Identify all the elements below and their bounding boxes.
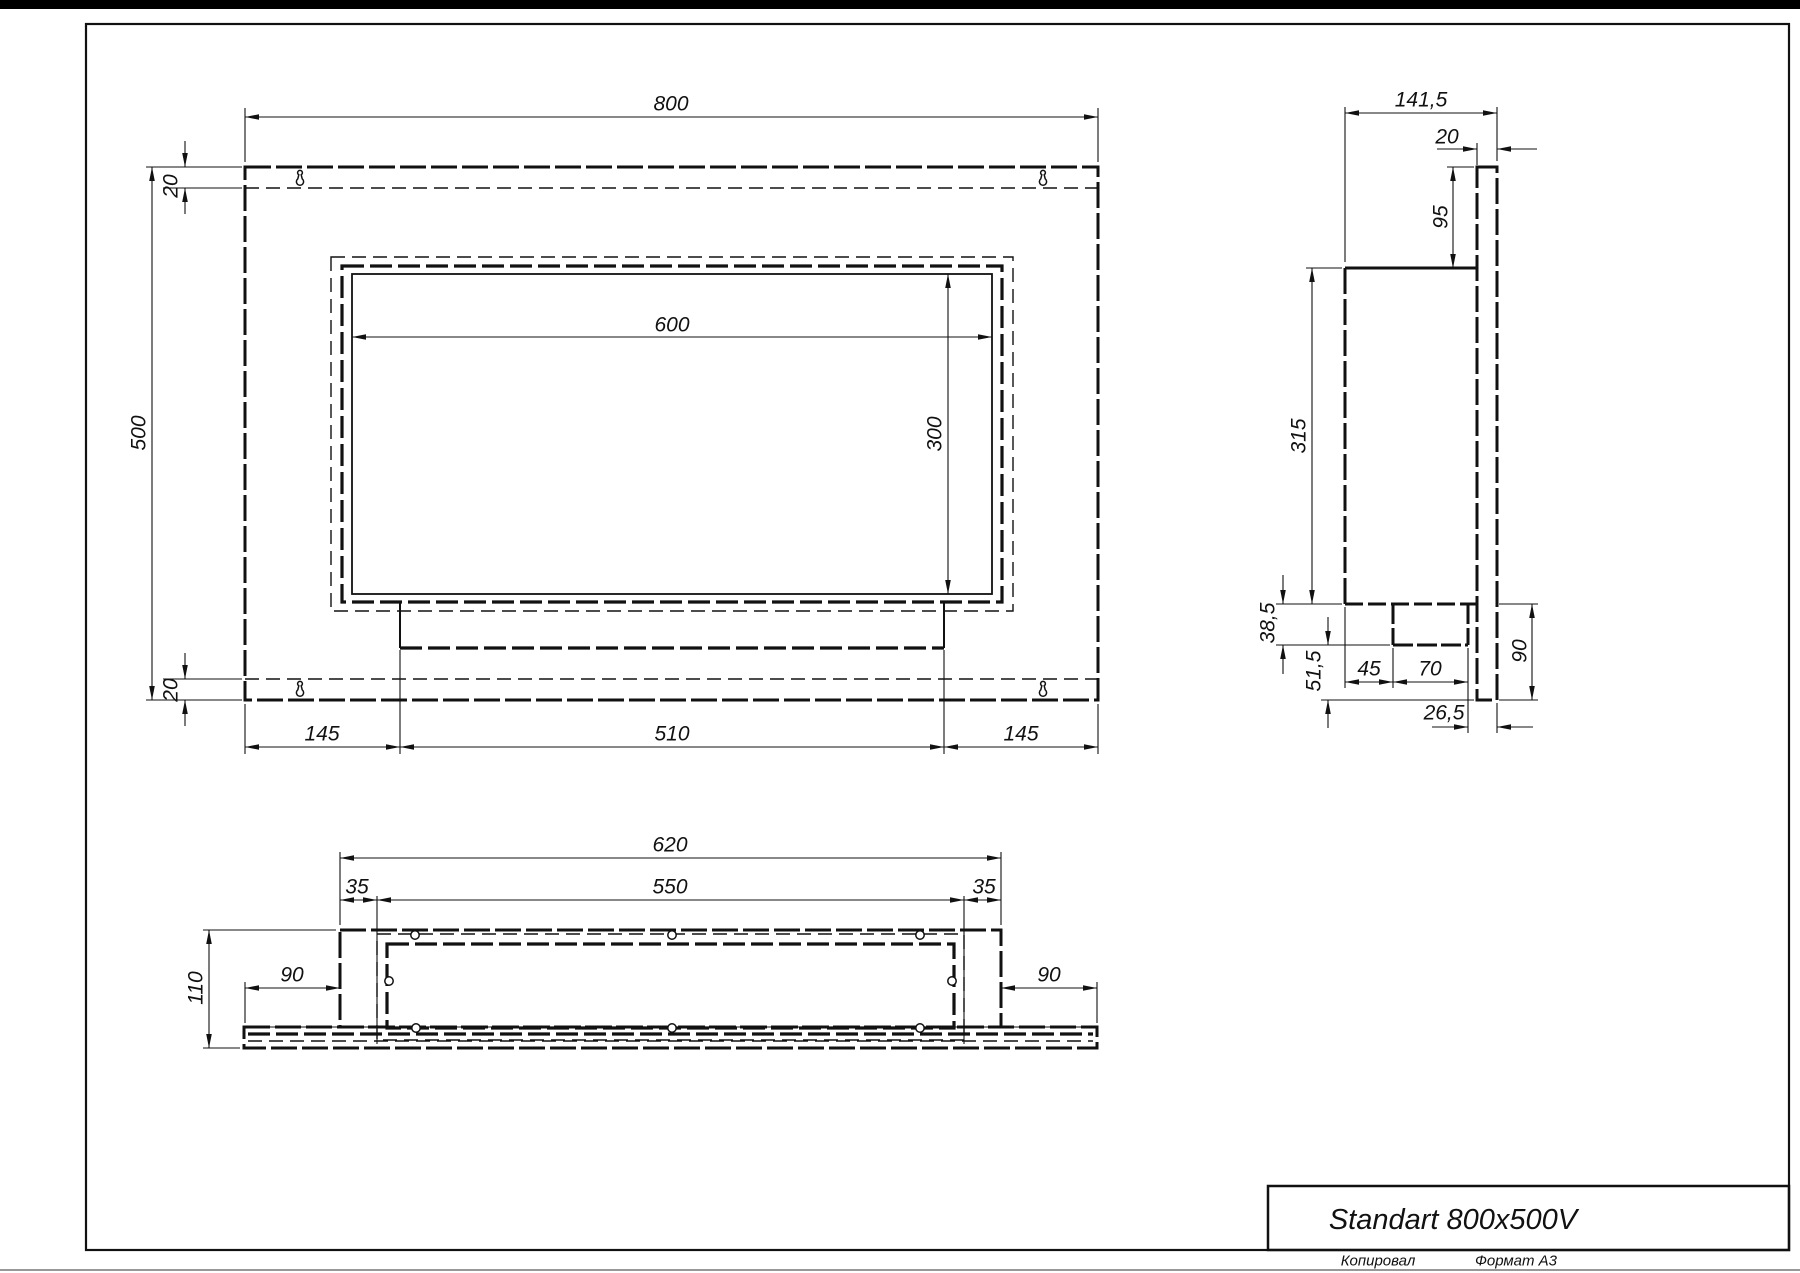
screw-hole bbox=[385, 977, 393, 985]
dim-label: 26,5 bbox=[1423, 702, 1465, 725]
dim-label: 20 bbox=[160, 678, 183, 703]
dim-label: 600 bbox=[654, 314, 689, 337]
dim-label: 110 bbox=[185, 971, 208, 1005]
bottom-view bbox=[203, 852, 1097, 1048]
dim-label: 38,5 bbox=[1257, 602, 1280, 643]
screw-hole bbox=[668, 1024, 676, 1032]
bottom-view-dimensions bbox=[203, 852, 1097, 1048]
dim-label: 620 bbox=[652, 834, 687, 857]
front-view-dimensions bbox=[146, 108, 1098, 754]
opening-hidden-frame bbox=[331, 257, 1013, 611]
dim-label: 90 bbox=[1509, 639, 1532, 663]
dim-label: 300 bbox=[924, 416, 947, 451]
dim-label: 141,5 bbox=[1395, 89, 1448, 112]
dim-label: 510 bbox=[654, 723, 689, 746]
dim-label: 800 bbox=[653, 93, 688, 116]
page-frame bbox=[0, 0, 1800, 1270]
dim-label: 550 bbox=[652, 876, 687, 899]
dim-label: 35 bbox=[972, 876, 996, 899]
firebox-hidden-outline bbox=[387, 944, 954, 1028]
front-view bbox=[146, 108, 1098, 754]
keyhole-mount-icon bbox=[296, 170, 303, 185]
dim-label: 51,5 bbox=[1303, 650, 1326, 691]
keyhole-mount-icon bbox=[1039, 170, 1046, 185]
screw-hole bbox=[916, 1024, 924, 1032]
engineering-drawing-canvas: Standart 800x500V Копировал Формат А3 80… bbox=[0, 0, 1800, 1273]
dim-label: 70 bbox=[1418, 658, 1442, 681]
screw-hole bbox=[668, 931, 676, 939]
front-panel-outline bbox=[245, 167, 1098, 700]
screw-hole bbox=[948, 977, 956, 985]
dim-label: 95 bbox=[1430, 205, 1453, 229]
dim-label: 145 bbox=[1003, 723, 1038, 746]
title-block: Standart 800x500V Копировал Формат А3 bbox=[1268, 1186, 1789, 1270]
format-label: Формат А3 bbox=[1475, 1253, 1558, 1270]
keyhole-mount-icon bbox=[296, 681, 303, 696]
drawing-sheet: Standart 800x500V Копировал Формат А3 80… bbox=[0, 0, 1800, 1273]
side-panel-strip bbox=[1477, 167, 1497, 700]
dim-label: 500 bbox=[128, 415, 151, 450]
screw-hole bbox=[412, 1024, 420, 1032]
side-view bbox=[1276, 107, 1538, 733]
copied-label: Копировал bbox=[1341, 1253, 1416, 1270]
dim-label: 90 bbox=[280, 964, 304, 987]
dim-label: 145 bbox=[304, 723, 339, 746]
screw-hole bbox=[916, 931, 924, 939]
screw-holes bbox=[385, 931, 956, 1032]
side-view-dimensions bbox=[1276, 107, 1538, 733]
drawing-title: Standart 800x500V bbox=[1329, 1204, 1580, 1236]
dim-label: 35 bbox=[345, 876, 369, 899]
dim-label: 45 bbox=[1357, 658, 1381, 681]
dimension-labels: 8005002020600300145510145141,5209531538,… bbox=[128, 89, 1532, 1005]
keyhole-mount-icon bbox=[1039, 681, 1046, 696]
dim-label: 315 bbox=[1288, 418, 1311, 453]
scan-edge-top bbox=[0, 0, 1800, 9]
dim-label: 20 bbox=[1434, 126, 1459, 149]
screw-hole bbox=[411, 931, 419, 939]
dim-label: 20 bbox=[160, 174, 183, 199]
dim-label: 90 bbox=[1037, 964, 1061, 987]
drawing-border bbox=[86, 24, 1789, 1250]
